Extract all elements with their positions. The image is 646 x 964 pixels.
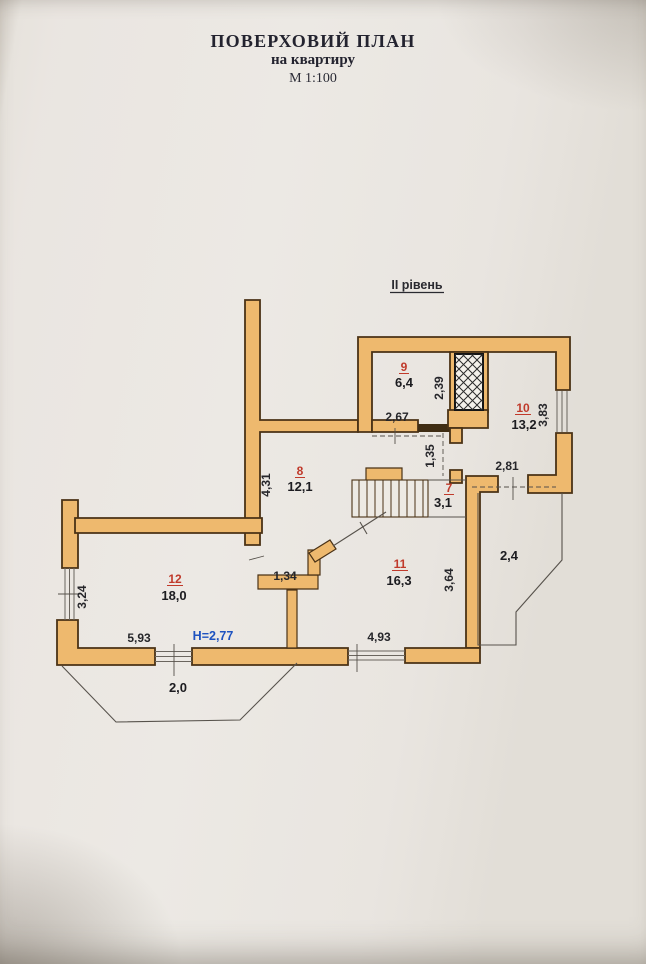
dimension-label: 2,81 (495, 459, 519, 473)
wall-segment (466, 476, 498, 648)
room-number: 11 (394, 557, 407, 571)
room-11-label: 11 16,3 (386, 557, 411, 588)
room-area: 18,0 (161, 588, 186, 603)
dimension-label: 2,39 (432, 376, 446, 400)
dimension-label: 5,93 (127, 631, 151, 645)
room-area: 6,4 (395, 375, 414, 390)
ventilation-shaft (455, 354, 483, 410)
room-12-label: 12 18,0 (161, 572, 186, 603)
balcony-area: 2,4 (500, 548, 519, 563)
dimension-label: 3,64 (442, 568, 456, 592)
room-9-label: 9 6,4 (395, 360, 414, 390)
dimension-label: 3,24 (75, 585, 89, 609)
room-number: 12 (168, 572, 182, 586)
room-area: 13,2 (511, 417, 536, 432)
wall-segment (405, 648, 480, 663)
room-area: 3,1 (434, 495, 452, 510)
room-7-label: 7 3,1 (434, 481, 454, 510)
wall-segment (192, 648, 348, 665)
room-number: 9 (401, 360, 408, 374)
floor-plan-canvas: ПОВЕРХОВИЙ ПЛАН на квартиру М 1:100 ІІ р… (0, 0, 646, 964)
room-area: 12,1 (287, 479, 312, 494)
wall-segment (287, 590, 297, 648)
room-number: 8 (297, 464, 304, 478)
window-bottom-left (155, 652, 192, 662)
page-subtitle: на квартиру (271, 52, 355, 68)
wall-segment (450, 428, 462, 443)
room-10-label: 10 13,2 (511, 401, 536, 432)
walls (57, 300, 572, 665)
balcony-right-outline (478, 493, 562, 645)
document-header: ПОВЕРХОВИЙ ПЛАН на квартиру М 1:100 (210, 30, 415, 86)
dimension-label: 1,34 (273, 569, 297, 583)
dimension-label: 1,35 (423, 444, 437, 468)
shaft-hatch (455, 354, 483, 410)
level-label-group: ІІ рівень (390, 278, 444, 293)
balcony-area: 2,0 (169, 680, 187, 695)
ceiling-height-note: Н=2,77 (193, 629, 234, 643)
dim-tick (249, 556, 264, 560)
wall-segment (309, 540, 336, 562)
wall-segment (62, 500, 78, 568)
room-number: 10 (516, 401, 530, 415)
wall-segment (245, 300, 358, 545)
room-number: 7 (446, 481, 453, 495)
dimension-label: 2,67 (385, 410, 409, 424)
wall-segment (528, 433, 572, 493)
scanned-floor-plan-page: ПОВЕРХОВИЙ ПЛАН на квартиру М 1:100 ІІ р… (0, 0, 646, 964)
page-title: ПОВЕРХОВИЙ ПЛАН (210, 30, 415, 51)
wall-segment (75, 518, 262, 533)
wall-segment (448, 410, 488, 428)
scale-label: М 1:100 (289, 71, 337, 86)
room-8-label: 8 12,1 (287, 464, 312, 494)
dimension-label: 3,83 (536, 403, 550, 427)
room-area: 16,3 (386, 573, 411, 588)
window-right (557, 391, 567, 432)
level-label: ІІ рівень (391, 278, 443, 292)
dimension-label: 4,31 (259, 473, 273, 497)
stair-enclosure (352, 480, 428, 517)
dimension-label: 4,93 (367, 630, 391, 644)
